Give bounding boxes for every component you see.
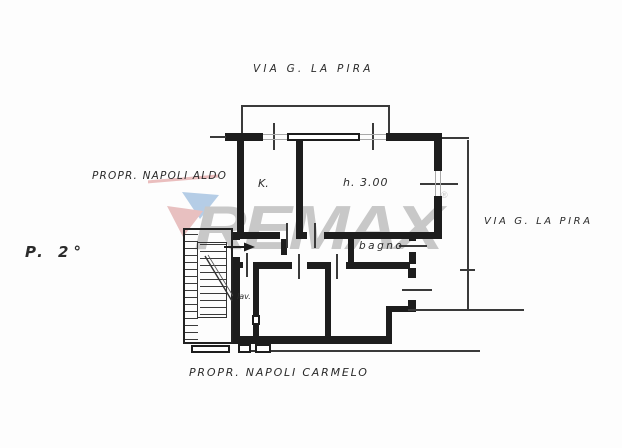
wall-segment <box>233 336 390 344</box>
wall-segment <box>324 232 416 239</box>
thin-line <box>402 289 432 291</box>
thin-line <box>467 140 469 310</box>
wall-segment <box>240 262 243 268</box>
entrance-arrow-icon <box>220 236 260 258</box>
owner-label-left: PROPR. NAPOLI ALDO <box>92 170 227 182</box>
wall-segment <box>253 262 259 342</box>
window-jamb-hairline <box>440 171 441 196</box>
wall-segment <box>307 262 326 269</box>
thin-line <box>241 105 243 133</box>
thin-line <box>388 105 390 133</box>
wall-segment <box>434 141 442 171</box>
wall-segment <box>225 133 263 141</box>
wall-segment <box>408 268 416 278</box>
wall-segment <box>348 239 354 264</box>
hollow-wall-segment <box>255 344 271 353</box>
thin-line <box>210 136 226 138</box>
thin-line <box>246 253 248 277</box>
thin-line <box>372 123 374 150</box>
wall-segment <box>259 262 292 269</box>
thin-line <box>420 183 458 185</box>
thin-line <box>336 254 338 279</box>
floor-plan-scan: REMAX ® VIA G. LA PIRA VIA G. LA PIRA PR… <box>0 0 622 448</box>
hollow-wall-segment <box>287 133 360 141</box>
wall-segment <box>233 232 240 240</box>
wall-segment <box>409 232 416 241</box>
wall-segment <box>296 141 303 232</box>
window-jamb-hairline <box>360 134 386 135</box>
floor-level-label: P. 2° <box>25 243 86 261</box>
hollow-wall-segment <box>238 344 251 353</box>
wall-segment <box>409 252 416 264</box>
window-jamb-hairline <box>263 134 287 135</box>
room-label-bath: bagno <box>359 240 404 252</box>
wall-segment <box>237 141 244 232</box>
wall-segment <box>346 262 410 269</box>
thin-line <box>408 309 524 311</box>
hollow-wall-segment <box>252 315 260 325</box>
thin-line <box>241 105 390 107</box>
thin-line <box>240 350 480 352</box>
street-label-right: VIA G. LA PIRA <box>484 216 593 227</box>
wall-segment <box>234 232 280 239</box>
window-jamb-hairline <box>435 171 436 196</box>
hollow-wall-segment <box>191 345 230 353</box>
wall-segment <box>434 196 442 232</box>
wall-segment <box>388 306 409 312</box>
thin-line <box>286 223 288 248</box>
wall-segment <box>325 262 331 338</box>
wall-segment <box>416 232 442 239</box>
thin-line <box>460 269 475 271</box>
room-label-kitchen: K. <box>258 177 269 190</box>
window-jamb-hairline <box>263 139 287 140</box>
street-label-top: VIA G. LA PIRA <box>253 63 374 75</box>
wall-segment <box>296 232 307 239</box>
thin-line <box>273 123 275 150</box>
owner-label-bottom: PROPR. NAPOLI CARMELO <box>189 366 369 379</box>
wall-segment <box>386 133 442 141</box>
thin-line <box>442 137 469 139</box>
registered-mark-icon: ® <box>441 190 448 200</box>
room-label-laundry: lav. <box>237 292 251 301</box>
thin-line <box>298 254 300 279</box>
ceiling-height-label: h. 3.00 <box>343 176 388 189</box>
thin-line <box>314 223 316 248</box>
window-jamb-hairline <box>360 139 386 140</box>
